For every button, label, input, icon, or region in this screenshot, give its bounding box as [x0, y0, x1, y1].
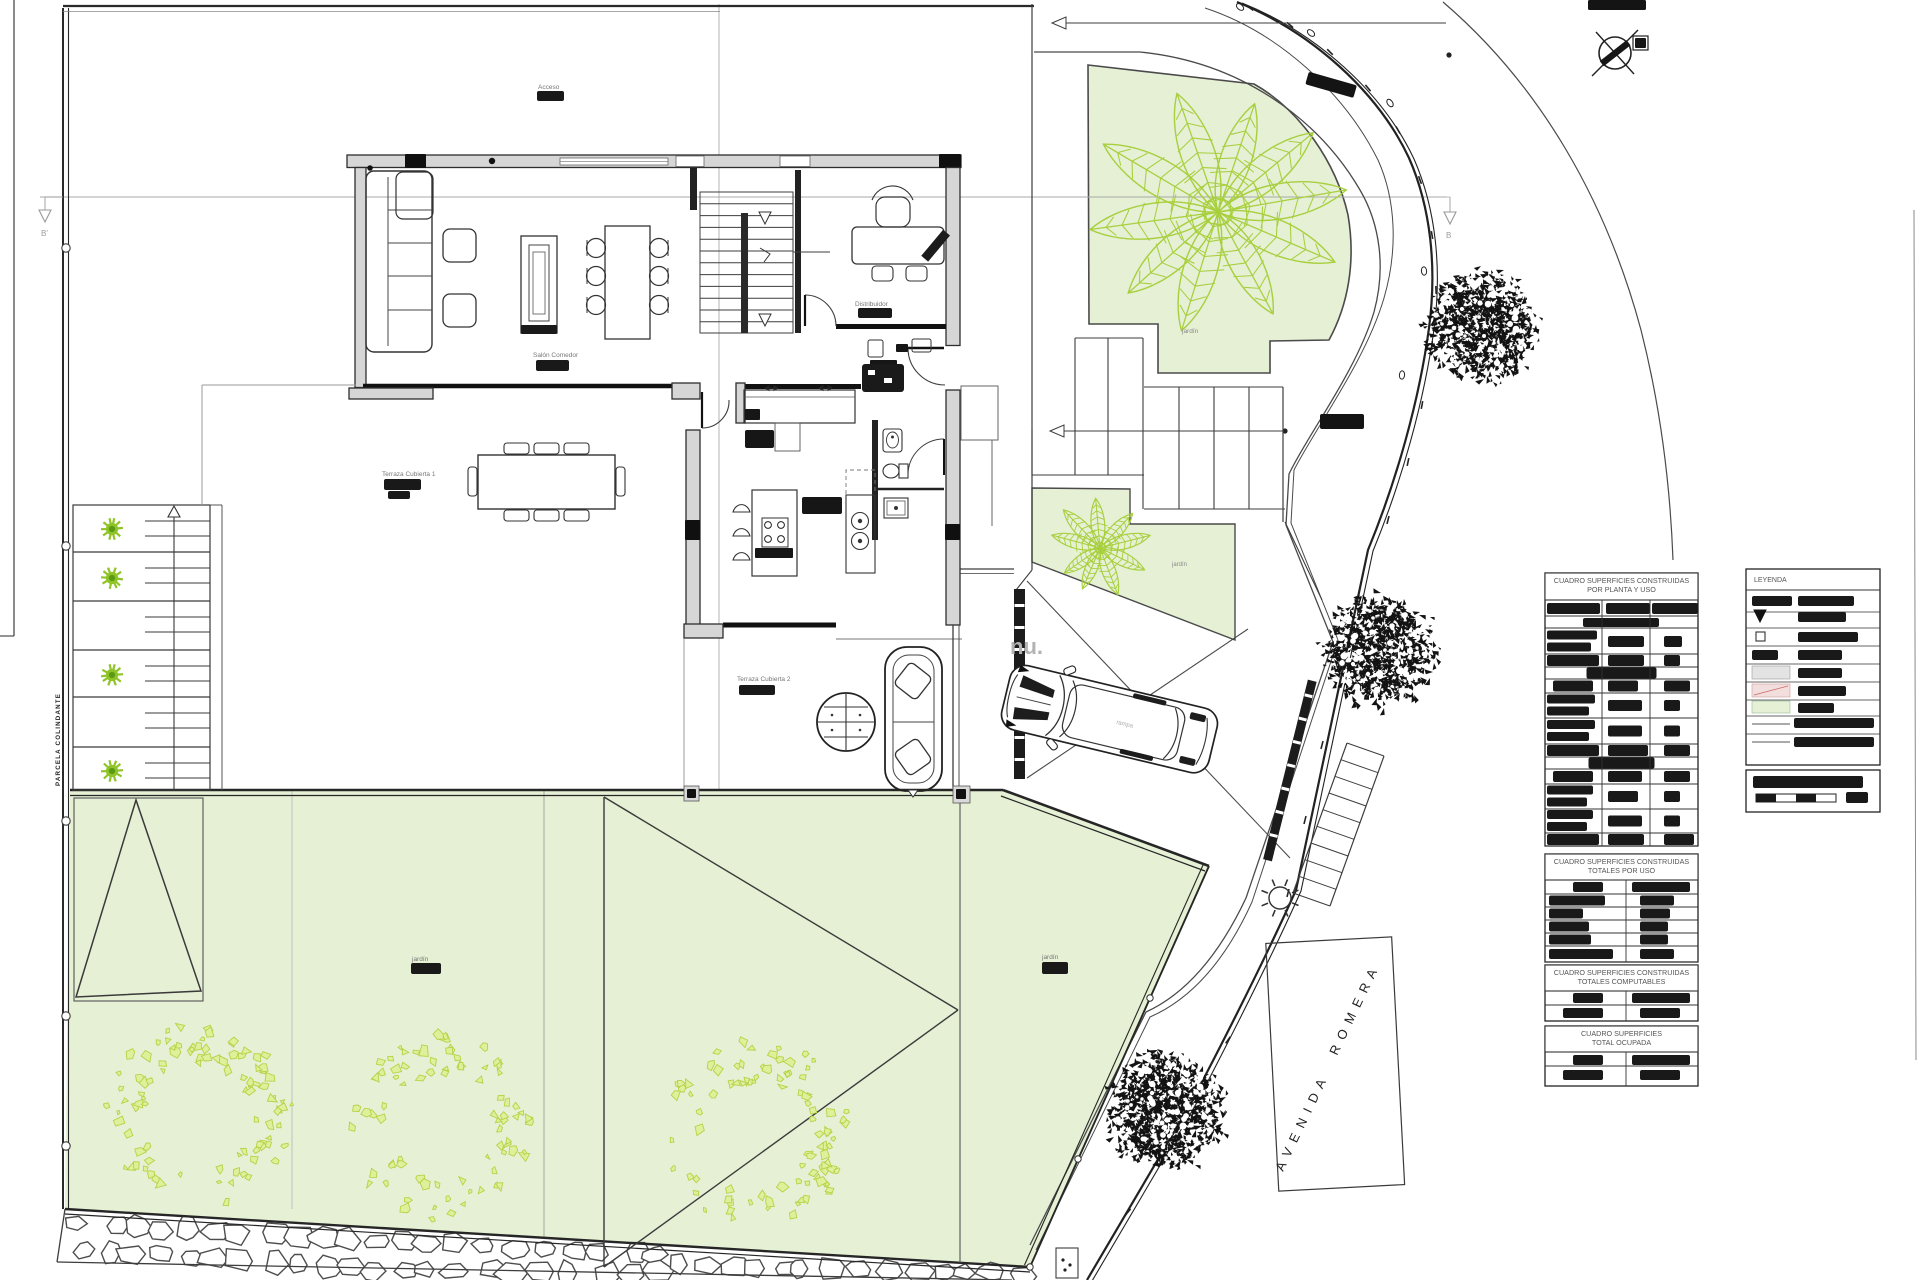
svg-text:Terraza Cubierta 1: Terraza Cubierta 1 [382, 471, 436, 478]
svg-text:Terraza Cubierta 2: Terraza Cubierta 2 [737, 676, 791, 683]
svg-text:jardín: jardín [1171, 562, 1187, 568]
svg-text:B: B [1446, 231, 1451, 240]
svg-text:jardín: jardín [1041, 954, 1059, 961]
svg-text:TOTAL OCUPADA: TOTAL OCUPADA [1592, 1038, 1651, 1047]
svg-text:PARCELA COLINDANTE: PARCELA COLINDANTE [55, 693, 62, 786]
svg-text:CUADRO SUPERFICIES CONSTRUIDAS: CUADRO SUPERFICIES CONSTRUIDAS [1554, 857, 1690, 866]
svg-text:TOTALES COMPUTABLES: TOTALES COMPUTABLES [1578, 977, 1666, 986]
svg-text:CUADRO SUPERFICIES CONSTRUIDAS: CUADRO SUPERFICIES CONSTRUIDAS [1554, 968, 1690, 977]
svg-text:TOTALES POR USO: TOTALES POR USO [1588, 866, 1656, 875]
svg-text:POR PLANTA Y USO: POR PLANTA Y USO [1587, 585, 1656, 594]
svg-text:Acceso: Acceso [538, 84, 560, 91]
svg-text:CUADRO SUPERFICIES: CUADRO SUPERFICIES [1581, 1029, 1662, 1038]
svg-text:nu.: nu. [1010, 634, 1043, 659]
svg-text:jardín: jardín [411, 956, 429, 963]
svg-text:B': B' [41, 229, 48, 238]
svg-text:jardín: jardín [1181, 328, 1199, 335]
svg-text:CUADRO SUPERFICIES CONSTRUIDAS: CUADRO SUPERFICIES CONSTRUIDAS [1554, 576, 1690, 585]
svg-text:Distribuidor: Distribuidor [855, 301, 889, 308]
svg-text:LEYENDA: LEYENDA [1754, 577, 1787, 584]
svg-text:Salón Comedor: Salón Comedor [533, 352, 579, 359]
